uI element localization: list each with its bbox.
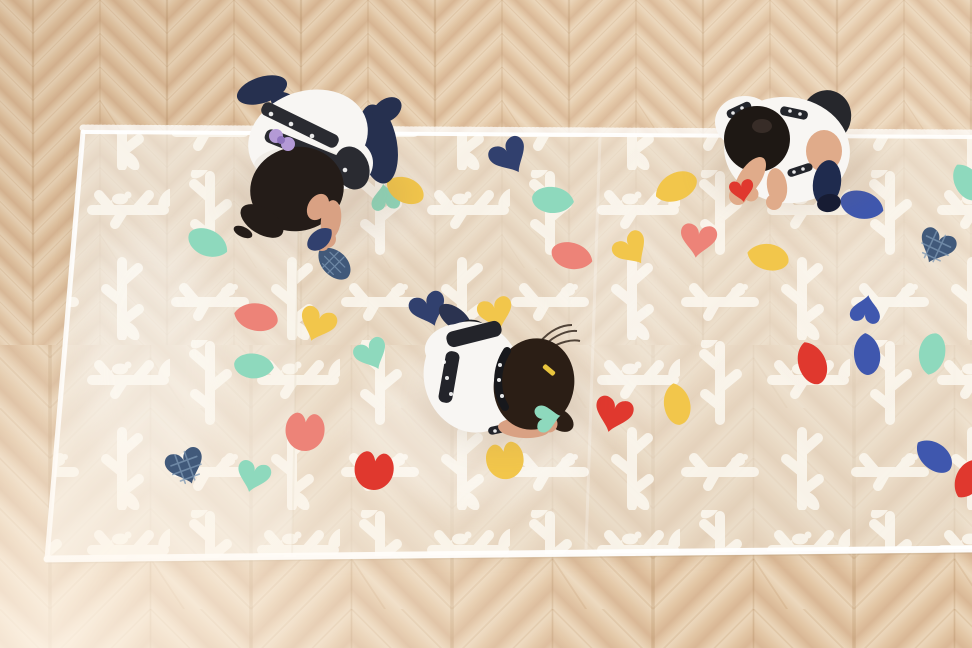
photo-stage: [0, 0, 972, 648]
scene-photo: [0, 0, 972, 648]
